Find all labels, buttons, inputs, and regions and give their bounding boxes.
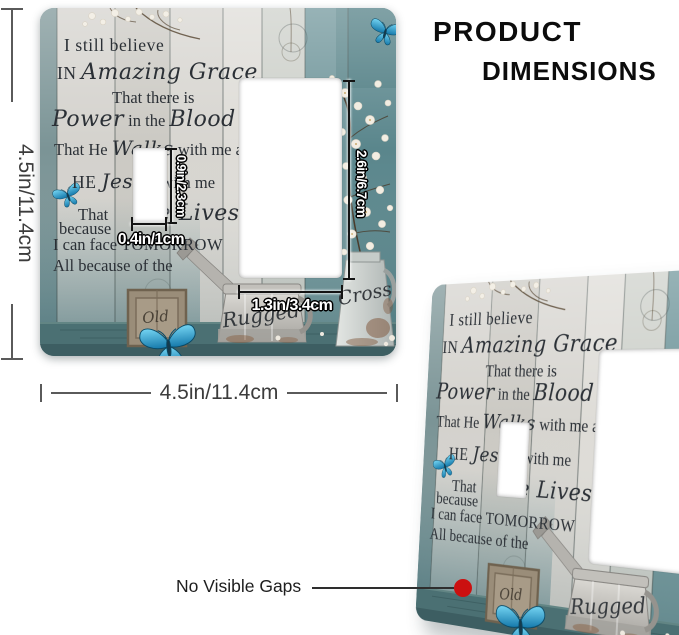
verse-line: IN Amazing Grace xyxy=(442,330,619,359)
gap-note-label: No Visible Gaps xyxy=(176,576,301,597)
gap-note-leader-line xyxy=(312,587,454,589)
verse-line: IN Amazing Grace xyxy=(57,60,258,85)
page-title: PRODUCT DIMENSIONS xyxy=(433,12,657,90)
rocker-opening xyxy=(239,78,342,278)
verse-line: I still believe xyxy=(64,35,164,56)
dimension-cap xyxy=(1,358,23,360)
verse-line: I still believe xyxy=(449,307,534,331)
dimension-line xyxy=(287,392,387,394)
verse-line: I can face TOMORROW xyxy=(53,235,223,255)
switch-plate-front-view: Rugged Cross Old I still believe IN Amaz… xyxy=(40,8,396,356)
plate-width-label: 4.5in/11.4cm xyxy=(160,381,279,405)
product-dimensions-infographic: PRODUCT DIMENSIONS 4.5in/11.4cm 4.5in/11… xyxy=(0,0,679,635)
title-line-2: DIMENSIONS xyxy=(482,53,657,91)
plate-verse-text: I still believe IN Amazing Grace That th… xyxy=(40,8,396,356)
dimension-cap xyxy=(396,384,398,402)
rocker-opening xyxy=(588,348,679,575)
dimension-line xyxy=(11,10,13,102)
toggle-switch-opening xyxy=(133,148,167,222)
dimension-line xyxy=(11,304,13,358)
switch-plate: Rugged Cross Old I still believe IN Amaz… xyxy=(415,265,679,635)
verse-line: All because of the xyxy=(53,256,173,276)
plate-width-dimension: 4.5in/11.4cm xyxy=(40,376,398,410)
switch-plate: Rugged Cross Old I still believe IN Amaz… xyxy=(40,8,396,356)
verse-line: That there is xyxy=(485,361,557,382)
plate-height-dimension: 4.5in/11.4cm xyxy=(0,8,40,360)
no-gap-indicator-dot xyxy=(454,579,472,597)
verse-line: That there is xyxy=(112,88,194,108)
verse-line: Power in the Blood xyxy=(52,107,236,132)
toggle-switch-opening xyxy=(497,422,530,499)
dimension-cap xyxy=(40,384,42,402)
dimension-line xyxy=(51,392,151,394)
title-line-1: PRODUCT xyxy=(433,12,657,53)
switch-plate-angled-view: Rugged Cross Old I still believe IN Amaz… xyxy=(415,265,679,635)
plate-height-label: 4.5in/11.4cm xyxy=(13,102,37,304)
verse-line: Power in the Blood xyxy=(436,380,595,407)
